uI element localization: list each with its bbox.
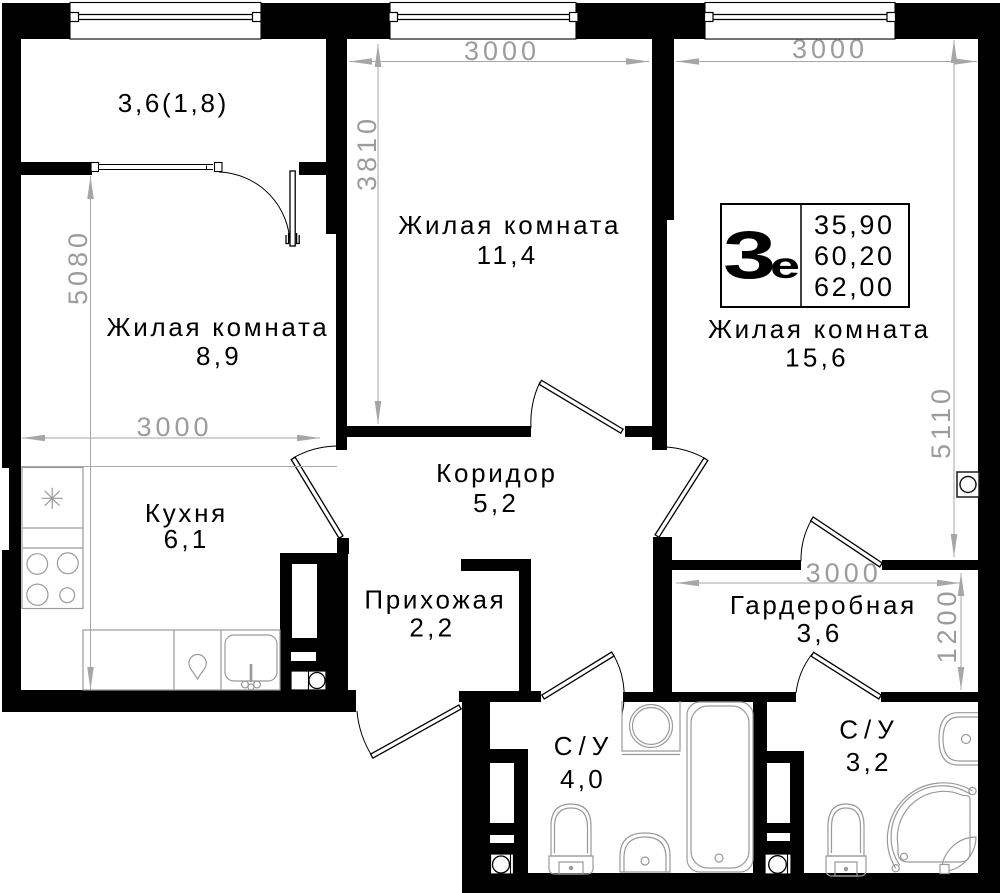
svg-text:8,9: 8,9 (196, 341, 242, 371)
svg-text:3: 3 (723, 217, 776, 293)
svg-text:3810: 3810 (352, 115, 382, 191)
svg-text:С/У: С/У (554, 731, 615, 761)
svg-text:5110: 5110 (926, 385, 956, 459)
svg-text:3000: 3000 (464, 36, 540, 66)
svg-text:1200: 1200 (932, 587, 962, 663)
svg-text:е: е (770, 245, 800, 286)
svg-text:62,00: 62,00 (814, 272, 895, 302)
svg-text:3,6(1,8): 3,6(1,8) (118, 88, 229, 118)
svg-text:Гардеробная: Гардеробная (730, 590, 917, 620)
svg-text:Жилая комната: Жилая комната (398, 210, 621, 240)
svg-text:4,0: 4,0 (560, 764, 606, 794)
svg-text:3000: 3000 (792, 34, 868, 64)
svg-text:С/У: С/У (839, 715, 900, 745)
svg-text:3000: 3000 (806, 558, 882, 588)
svg-text:Коридор: Коридор (436, 458, 558, 488)
svg-text:2,2: 2,2 (409, 613, 455, 643)
svg-text:5080: 5080 (63, 229, 93, 305)
svg-text:Жилая комната: Жилая комната (708, 314, 931, 344)
svg-text:3,6: 3,6 (797, 618, 843, 648)
svg-text:3000: 3000 (136, 412, 212, 442)
svg-text:11,4: 11,4 (477, 240, 539, 270)
svg-text:35,90: 35,90 (814, 210, 895, 240)
svg-text:Жилая комната: Жилая комната (107, 312, 330, 342)
svg-text:3,2: 3,2 (846, 747, 892, 777)
svg-text:15,6: 15,6 (785, 343, 849, 373)
svg-text:5,2: 5,2 (473, 488, 519, 518)
svg-text:6,1: 6,1 (164, 524, 210, 554)
svg-text:Прихожая: Прихожая (364, 585, 506, 615)
svg-text:60,20: 60,20 (814, 241, 895, 271)
